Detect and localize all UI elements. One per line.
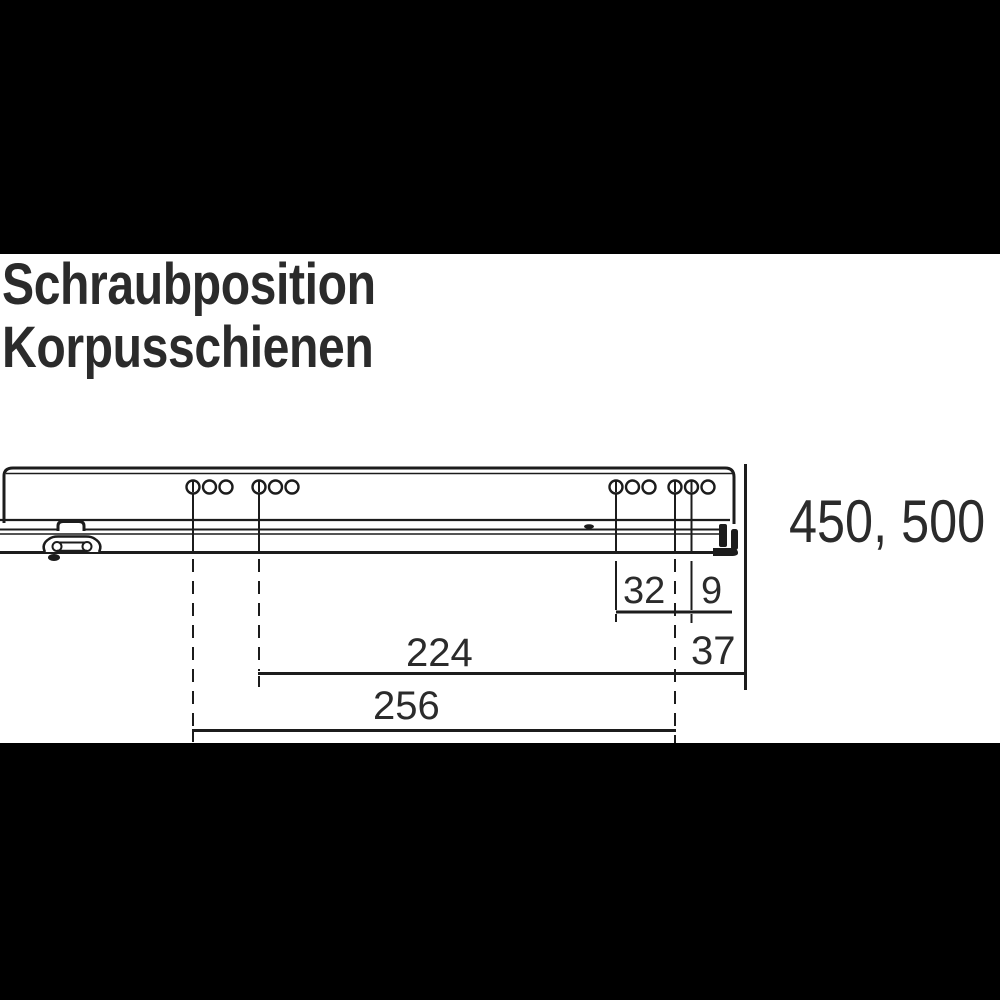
screw-position-marks: [193, 481, 692, 493]
dimension-label-37: 37: [691, 631, 736, 671]
title-line-1: Schraubposition: [2, 253, 376, 316]
dimension-label-32: 32: [623, 572, 665, 610]
rail-rear-clip: [44, 522, 101, 562]
title-line-2: Korpusschienen: [2, 316, 376, 379]
dimension-label-9: 9: [701, 572, 722, 610]
screw-holes: [187, 481, 715, 494]
page-frame: Schraubposition Korpusschienen 32 9 37 2…: [0, 0, 1000, 1000]
page-title: Schraubposition Korpusschienen: [2, 253, 376, 379]
rail-lengths-label: 450, 500: [789, 492, 985, 552]
rail-rivet: [584, 524, 594, 529]
dimension-label-224: 224: [406, 633, 473, 673]
extension-lines: [193, 494, 692, 743]
rail-outline: [0, 468, 734, 553]
dimension-label-256: 256: [373, 686, 440, 726]
